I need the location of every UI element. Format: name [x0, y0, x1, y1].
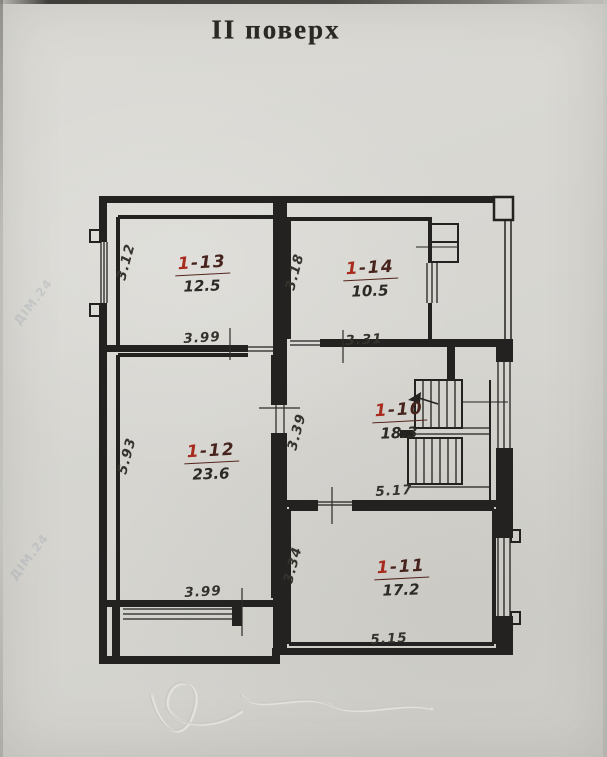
room-number: 1-11 [373, 556, 429, 581]
wall [99, 303, 107, 663]
room-number: 1-13 [174, 252, 230, 277]
window-right-1-14 [427, 263, 437, 303]
room-number: 1-10 [371, 399, 427, 424]
wall [112, 600, 120, 660]
dimension-5-17: 5.17 [375, 482, 413, 500]
room-area: 12.5 [174, 276, 229, 296]
wall [273, 433, 287, 648]
room-label-1-11: 1-11 17.2 [374, 557, 429, 599]
wall [496, 448, 513, 538]
door-1-12-to-1-10 [276, 405, 284, 433]
window-bottom-1-12 [123, 609, 232, 619]
scanned-floor-plan-page: II поверх ДІМ.24 ДІМ.24 [0, 0, 607, 757]
flue-niche [430, 224, 458, 242]
window-sill [90, 230, 100, 242]
window-right-stairs [498, 362, 510, 448]
room-number: 1-14 [342, 257, 398, 282]
wall [107, 345, 248, 352]
wall [232, 600, 242, 626]
window-right-1-11 [498, 538, 510, 616]
wall [287, 500, 318, 507]
walls-solid [99, 196, 513, 664]
wall [447, 347, 455, 380]
door-1-14-to-1-10 [290, 341, 320, 345]
room-label-1-14: 1-14 10.5 [343, 258, 398, 300]
wall [496, 340, 513, 362]
door-1-13-to-1-12 [248, 347, 273, 351]
room-area: 17.2 [373, 580, 428, 600]
stair-treads [416, 438, 456, 484]
roof-notch [494, 197, 513, 220]
room-area: 10.5 [342, 281, 397, 301]
room-label-1-12: 1-12 23.6 [184, 441, 239, 483]
dimension-3-99-top: 3.99 [183, 329, 221, 347]
dimension-5-15: 5.15 [370, 630, 408, 648]
faint-imprint-handwriting [150, 683, 432, 732]
dimension-3-99-bottom: 3.99 [184, 583, 222, 601]
room-area: 23.6 [183, 464, 238, 484]
floor-plan-drawing [0, 0, 607, 757]
wall [99, 656, 277, 664]
room-label-1-13: 1-13 12.5 [175, 253, 230, 295]
stair-treads [423, 380, 455, 428]
door-1-10-to-1-11 [318, 502, 352, 505]
upper-right-boundary [505, 220, 511, 340]
flue-niche [430, 242, 458, 262]
dimension-3-31: 3.31 [345, 331, 383, 349]
room-label-1-10: 1-10 18.3 [372, 400, 427, 442]
wall [277, 648, 513, 655]
room-area: 18.3 [371, 423, 426, 443]
wall [273, 345, 287, 405]
room-number: 1-12 [183, 440, 239, 465]
wall [352, 500, 496, 507]
wall [107, 600, 273, 607]
window-sill [90, 304, 100, 316]
window-left-1-13 [101, 242, 107, 303]
wall [99, 196, 495, 203]
